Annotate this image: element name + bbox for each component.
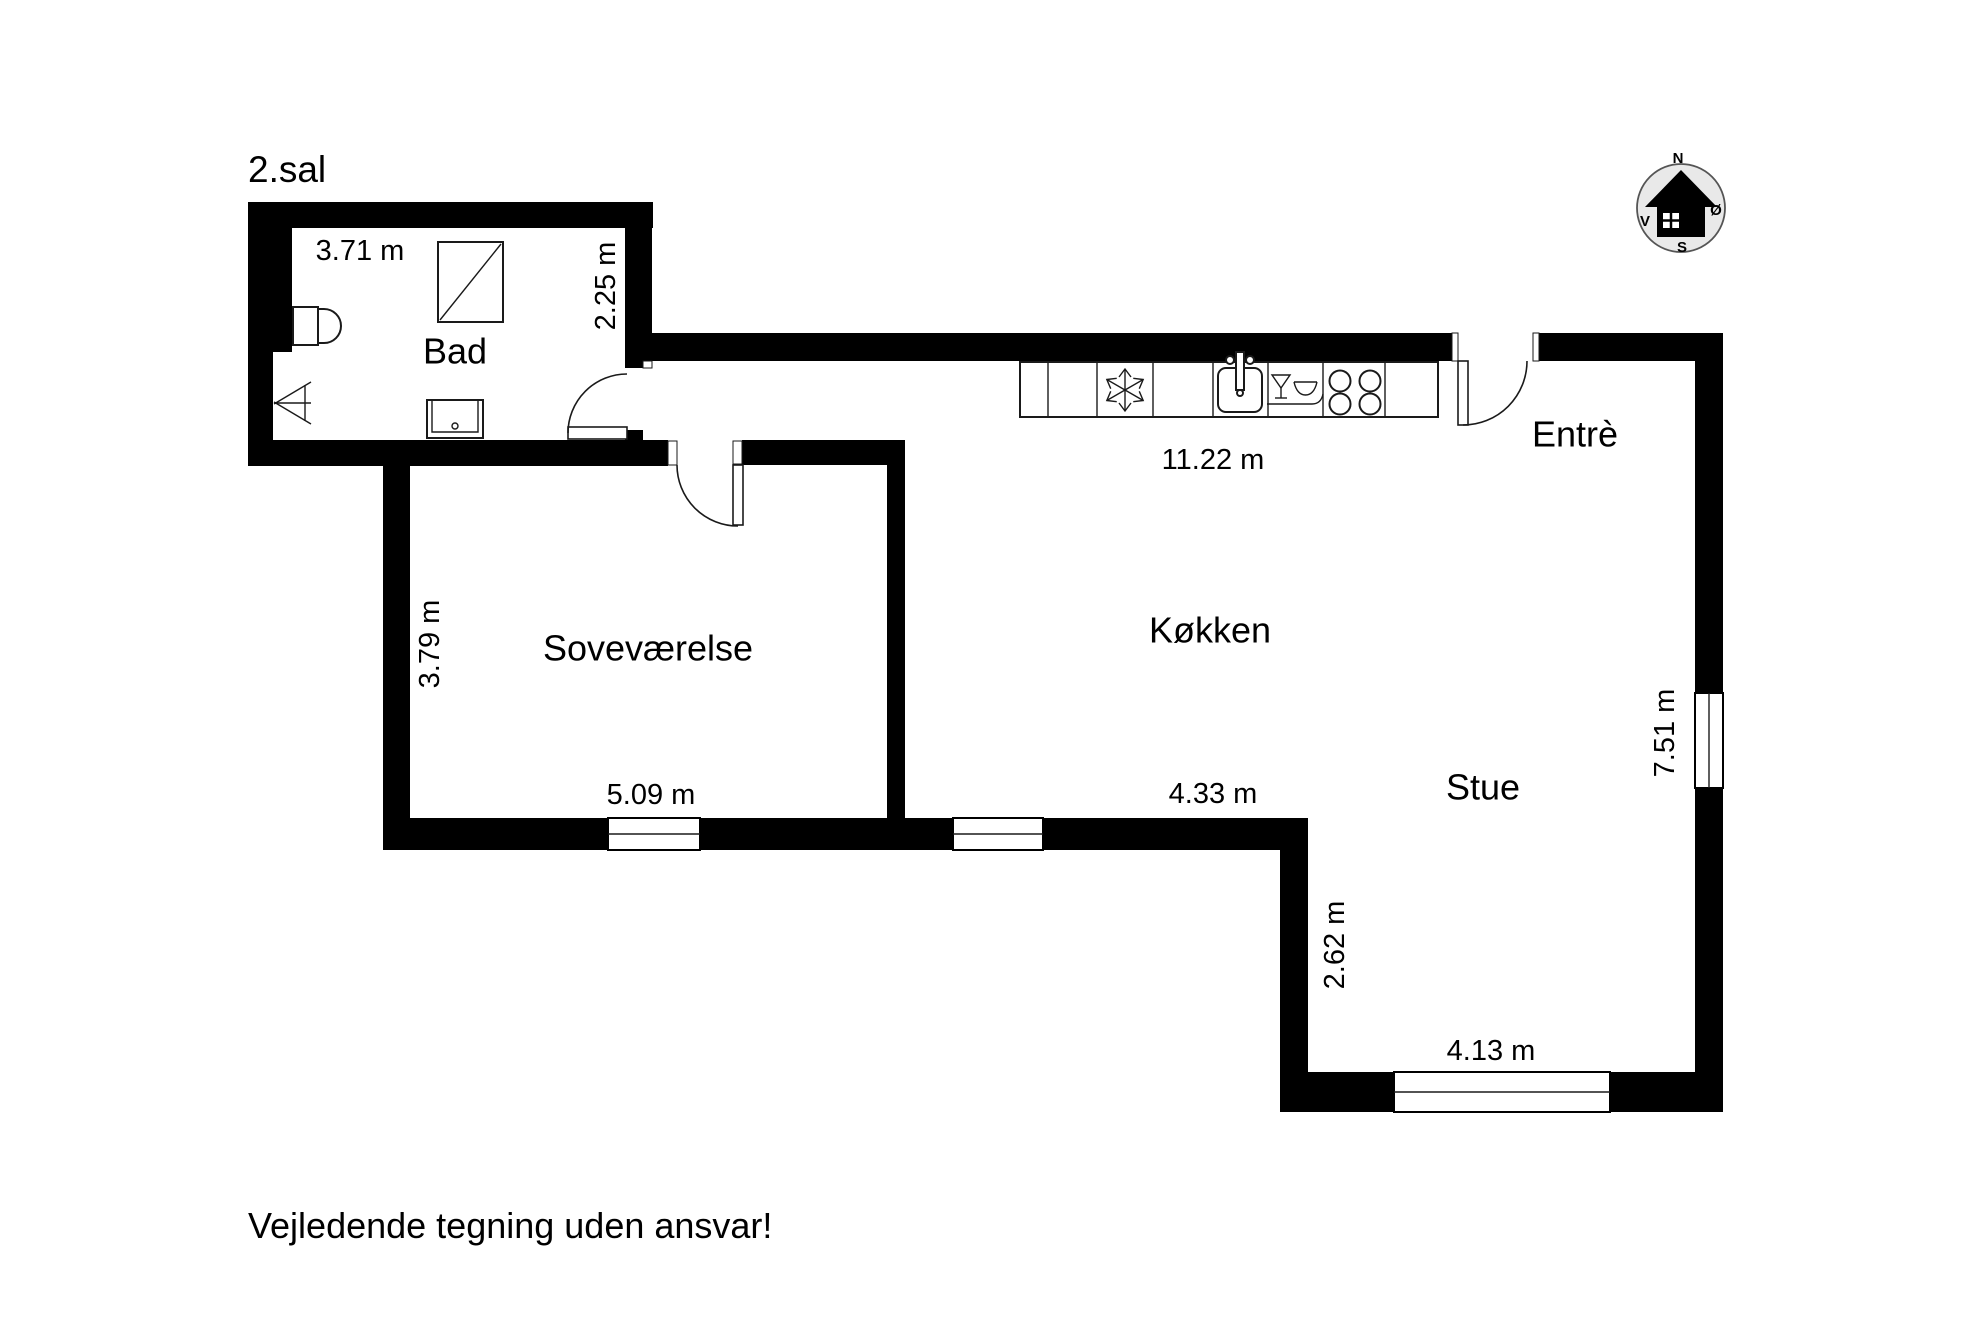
entry-door-leaf: [1458, 361, 1468, 425]
hand-basin-icon: [274, 382, 311, 424]
wall-corridor-top-west: [652, 333, 1458, 361]
bath-door-leaf: [568, 427, 627, 439]
wall-right-lower: [1695, 788, 1723, 1112]
compass-south-label: S: [1677, 239, 1687, 256]
door-bath: [568, 361, 652, 439]
dimension-sovevaerelse-depth: 3.79 m: [414, 600, 446, 689]
window-kitchen-south: [953, 818, 1043, 850]
compass-east-label: Ø: [1710, 202, 1722, 219]
dimension-koekken-width: 11.22 m: [1162, 444, 1265, 476]
wall-right-upper: [1695, 361, 1723, 693]
floor-plan-page: { "floor_plan": { "title": "2.sal", "dis…: [0, 0, 1984, 1323]
dimension-bad-depth: 2.25 m: [590, 242, 622, 331]
windows: [608, 693, 1723, 1112]
dimension-stue-width: 4.13 m: [1447, 1035, 1536, 1067]
room-label-stue: Stue: [1446, 767, 1520, 808]
door-jamb-notch: [1533, 333, 1539, 361]
wall-bath-bottom: [248, 440, 668, 466]
room-label-sovevaerelse: Soveværelse: [543, 628, 753, 669]
wall-divider-bedroom-kitchen: [887, 440, 905, 818]
window-stue-east: [1695, 693, 1723, 788]
window-stue-south: [1394, 1072, 1610, 1112]
dimension-bad-width: 3.71 m: [316, 235, 405, 267]
wall-bedroom-top-east: [742, 440, 905, 465]
room-label-koekken: Køkken: [1149, 610, 1271, 651]
compass: N V Ø S: [1637, 150, 1725, 256]
toilet-icon: [293, 307, 341, 345]
wall-bath-left-upper: [248, 202, 292, 352]
wall-bedroom-left: [383, 440, 410, 850]
bedroom-door-arc: [677, 465, 738, 526]
floor-plan-svg: N V Ø S 2.sal Bad Soveværelse Køkken Stu…: [0, 0, 1984, 1323]
kitchen-counter: [1020, 352, 1438, 417]
washbasin-icon: [427, 400, 483, 438]
door-bedroom: [668, 441, 743, 526]
wall-corridor-top-east: [1533, 333, 1723, 361]
bedroom-door-leaf: [733, 465, 743, 525]
room-label-bad: Bad: [423, 331, 487, 372]
door-jamb-notch: [668, 441, 677, 465]
window-bedroom-south: [608, 818, 700, 850]
compass-house-window: [1663, 213, 1679, 228]
room-label-entre: Entrè: [1532, 414, 1618, 455]
door-jamb-notch: [733, 441, 742, 464]
dimension-sovevaerelse-width: 5.09 m: [607, 779, 696, 811]
door-entry: [1452, 333, 1539, 425]
compass-north-label: N: [1673, 150, 1684, 167]
compass-west-label: V: [1640, 213, 1650, 230]
floor-title: 2.sal: [248, 149, 326, 190]
dimension-koekken-south: 4.33 m: [1169, 778, 1258, 810]
wall-bath-top: [248, 202, 653, 228]
dimension-stue-depth: 7.51 m: [1649, 689, 1681, 778]
wall-south-main: [383, 818, 1308, 850]
shower-icon: [438, 242, 503, 322]
wall-stue-step-left: [1280, 818, 1308, 1112]
entry-door-arc: [1463, 361, 1527, 425]
door-jamb-notch: [1452, 333, 1458, 361]
bath-door-arc: [568, 374, 627, 433]
dimension-stue-step: 2.62 m: [1319, 901, 1351, 990]
door-jamb-notch: [643, 361, 652, 368]
disclaimer-text: Vejledende tegning uden ansvar!: [248, 1205, 772, 1246]
wall-bath-right: [625, 202, 652, 368]
